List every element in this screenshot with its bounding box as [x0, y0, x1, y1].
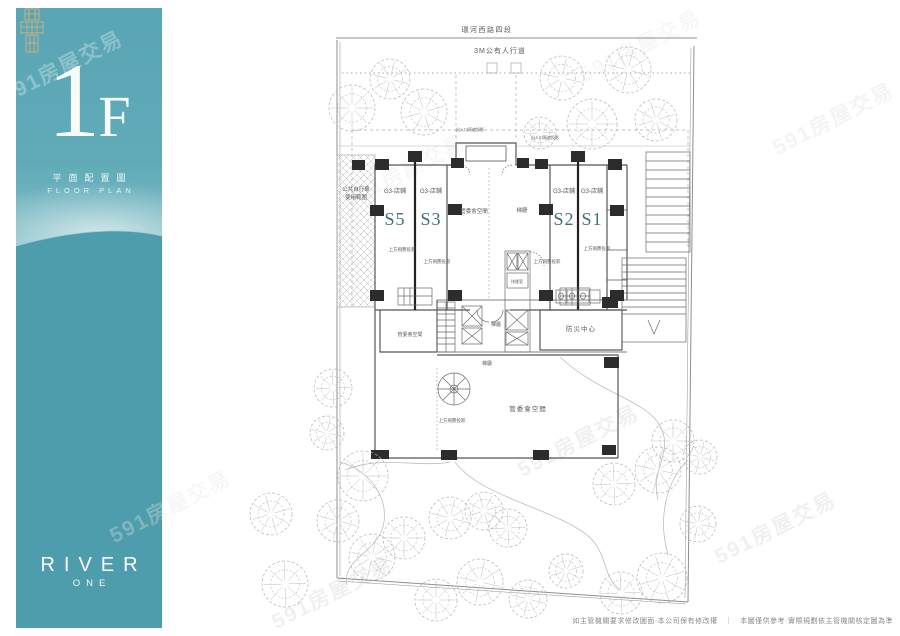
tree-icon [383, 517, 425, 559]
bike-area-label: 公共自行車 [342, 185, 370, 193]
tree-icon [465, 492, 503, 530]
tree-icon [524, 117, 556, 149]
tree-icon [317, 500, 359, 542]
annotation-eave: 上方飛簷投影 [439, 417, 466, 424]
tree-icon [329, 85, 375, 131]
projection-lines [352, 75, 688, 452]
room-label-mgmt-hall: 管委會空間 [509, 404, 547, 413]
tree-icon [680, 506, 716, 542]
tree-icon [401, 89, 447, 135]
unit-type-label: G3-店鋪 [581, 187, 603, 195]
annotation-eave: 上方飛簷投影 [389, 246, 416, 253]
tree-icon [338, 451, 388, 501]
unit-code-s2: S2 [553, 209, 574, 229]
columns [352, 151, 624, 460]
room-label-elev-hall: 梯廳 [482, 360, 492, 367]
tree-icon [605, 47, 651, 93]
room-label-elev-hall: 梯廳 [491, 321, 501, 328]
tree-icon [370, 59, 410, 99]
tree-icon [635, 447, 681, 493]
unit-code-s5: S5 [384, 209, 405, 229]
tree-icon [635, 99, 677, 141]
unit-type-label: G3-店鋪 [420, 187, 442, 195]
tree-icon [349, 534, 395, 580]
annotation-canopy: 出入口雨遮投影 [531, 134, 559, 140]
bike-area [337, 155, 375, 307]
annotation-canopy: 出入口雨遮投影 [456, 126, 484, 132]
road-label: 環河西路四段 [462, 25, 513, 34]
tree-icon [652, 420, 694, 462]
tree-icon [637, 553, 687, 603]
tree-icon [567, 99, 617, 149]
unit-code-s3: S3 [420, 209, 441, 229]
tree-icon [600, 572, 642, 614]
disclaimer-text: 如主管機關要求修改圖面·本公司保有修改權 ｜ 本圖僅供參考·實際規劃依主管機關核… [572, 616, 893, 626]
tree-icon [540, 56, 584, 100]
landscape-trees [250, 47, 717, 621]
annotation-eave: 上方飛簷投影 [584, 245, 611, 252]
tree-icon [683, 440, 717, 474]
annotation-eave: 上方飛簷投影 [424, 258, 451, 265]
unit-type-label: G3-店鋪 [553, 187, 575, 195]
tree-icon [457, 559, 503, 605]
tree-icon [314, 369, 352, 407]
room-label-smoke: 排煙室 [511, 278, 523, 284]
room-label-disaster: 防災中心 [566, 324, 596, 333]
tree-icon [509, 580, 547, 618]
tree-icon [593, 463, 635, 505]
tree-icon [429, 497, 471, 539]
unit-code-s1: S1 [581, 209, 602, 229]
sidewalk-label: 3M公有人行道 [474, 46, 526, 55]
site-plan-drawing: 環河西路四段 3M公有人行道 公共自行車 使用範圍 G3-店鋪 G3-店鋪 G3… [0, 0, 900, 636]
bike-area-label: 使用範圍 [345, 193, 368, 201]
floor-plan-page: 1F 平面配置圖 FLOOR PLAN RIVER ONE [0, 0, 900, 636]
room-label-elev-hall: 梯廳 [516, 206, 528, 214]
room-label-mgmt: 管委會空間 [397, 331, 422, 338]
tree-icon [250, 493, 292, 535]
tree-icon [549, 554, 583, 588]
tree-icon [489, 509, 527, 547]
annotation-eave: 上方飛簷投影 [534, 258, 561, 265]
tree-icon [262, 561, 308, 607]
tree-icon [310, 416, 344, 450]
room-label-mgmt: 管委會空間 [460, 207, 488, 215]
building-walls [371, 63, 627, 458]
unit-type-label: G3-店鋪 [384, 187, 406, 195]
